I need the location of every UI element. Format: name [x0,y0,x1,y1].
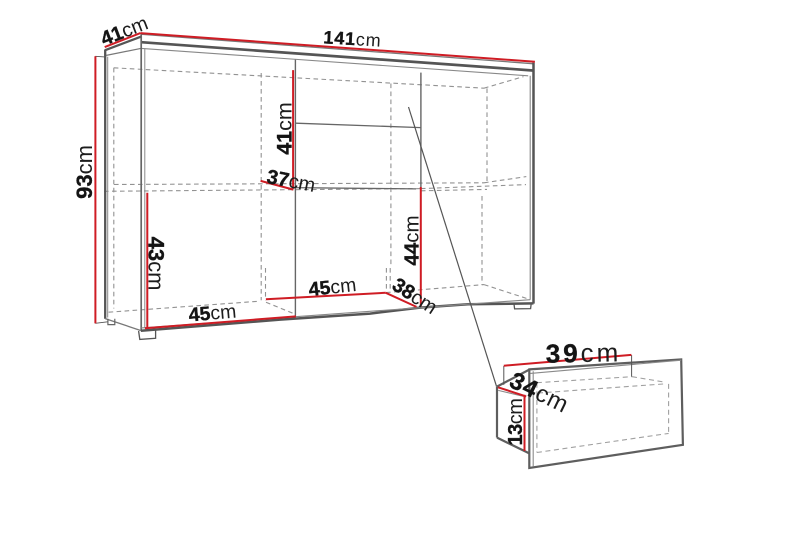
svg-text:141cm: 141cm [323,27,382,51]
svg-text:93cm: 93cm [72,145,97,199]
svg-text:39cm: 39cm [545,337,621,368]
svg-text:44cm: 44cm [400,215,423,265]
svg-text:45cm: 45cm [188,300,237,326]
svg-text:43cm: 43cm [144,237,169,291]
svg-text:41cm: 41cm [272,102,296,155]
svg-text:13cm: 13cm [505,399,527,446]
